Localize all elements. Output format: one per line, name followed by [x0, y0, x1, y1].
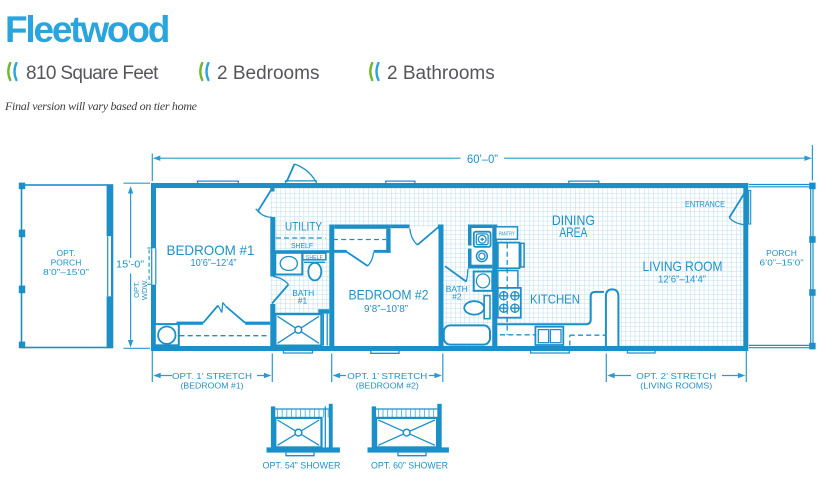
svg-text:PORCH: PORCH	[766, 248, 797, 258]
svg-text:ENTRANCE: ENTRANCE	[685, 200, 725, 209]
svg-text:BEDROOM #2: BEDROOM #2	[349, 287, 429, 303]
svg-text:SHELF: SHELF	[306, 255, 324, 261]
svg-text:(BEDROOM #2): (BEDROOM #2)	[356, 380, 419, 390]
svg-text:OPT. 60” SHOWER: OPT. 60” SHOWER	[371, 461, 448, 472]
svg-text:SHELF: SHELF	[291, 243, 313, 250]
svg-text:KITCHEN: KITCHEN	[530, 292, 580, 307]
svg-text:AREA: AREA	[559, 224, 587, 240]
svg-text:OPT. 1’ STRETCH: OPT. 1’ STRETCH	[347, 371, 427, 381]
svg-text:PORCH: PORCH	[51, 258, 82, 268]
svg-text:#2: #2	[452, 292, 462, 302]
svg-text:OPT.: OPT.	[57, 248, 76, 258]
svg-text:15’-0”: 15’-0”	[116, 260, 144, 271]
svg-text:(LIVING ROOMS): (LIVING ROOMS)	[640, 380, 712, 390]
svg-text:9’8”–10’8”: 9’8”–10’8”	[364, 304, 408, 315]
svg-text:OPT. 2’ STRETCH: OPT. 2’ STRETCH	[636, 371, 716, 381]
svg-text:LIVING ROOM: LIVING ROOM	[643, 258, 723, 274]
svg-text:BEDROOM #1: BEDROOM #1	[167, 242, 255, 258]
svg-text:UTILITY: UTILITY	[285, 222, 322, 234]
svg-text:OPT. 54” SHOWER: OPT. 54” SHOWER	[263, 461, 341, 472]
svg-text:10’6”–12’4”: 10’6”–12’4”	[191, 258, 237, 269]
svg-text:#1: #1	[298, 296, 308, 306]
svg-text:OPT. 1’ STRETCH: OPT. 1’ STRETCH	[172, 371, 252, 381]
svg-text:6’0”–15’0”: 6’0”–15’0”	[760, 258, 804, 268]
svg-text:(BEDROOM #1): (BEDROOM #1)	[181, 380, 244, 390]
svg-text:12’6”–14’4”: 12’6”–14’4”	[658, 275, 706, 286]
svg-text:8’0”–15’0”: 8’0”–15’0”	[43, 267, 89, 277]
svg-text:60’–0”: 60’–0”	[467, 154, 498, 166]
svg-text:PANTRY: PANTRY	[499, 231, 516, 237]
svg-text:WDW.: WDW.	[140, 279, 149, 300]
